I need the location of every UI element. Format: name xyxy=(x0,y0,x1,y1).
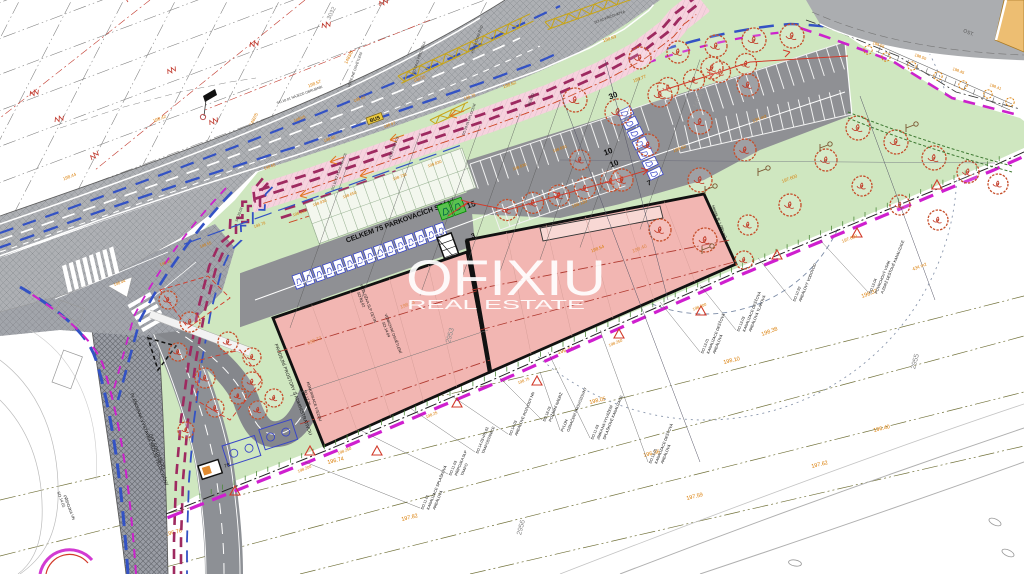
svg-text:REAL ESTATE: REAL ESTATE xyxy=(407,297,586,312)
